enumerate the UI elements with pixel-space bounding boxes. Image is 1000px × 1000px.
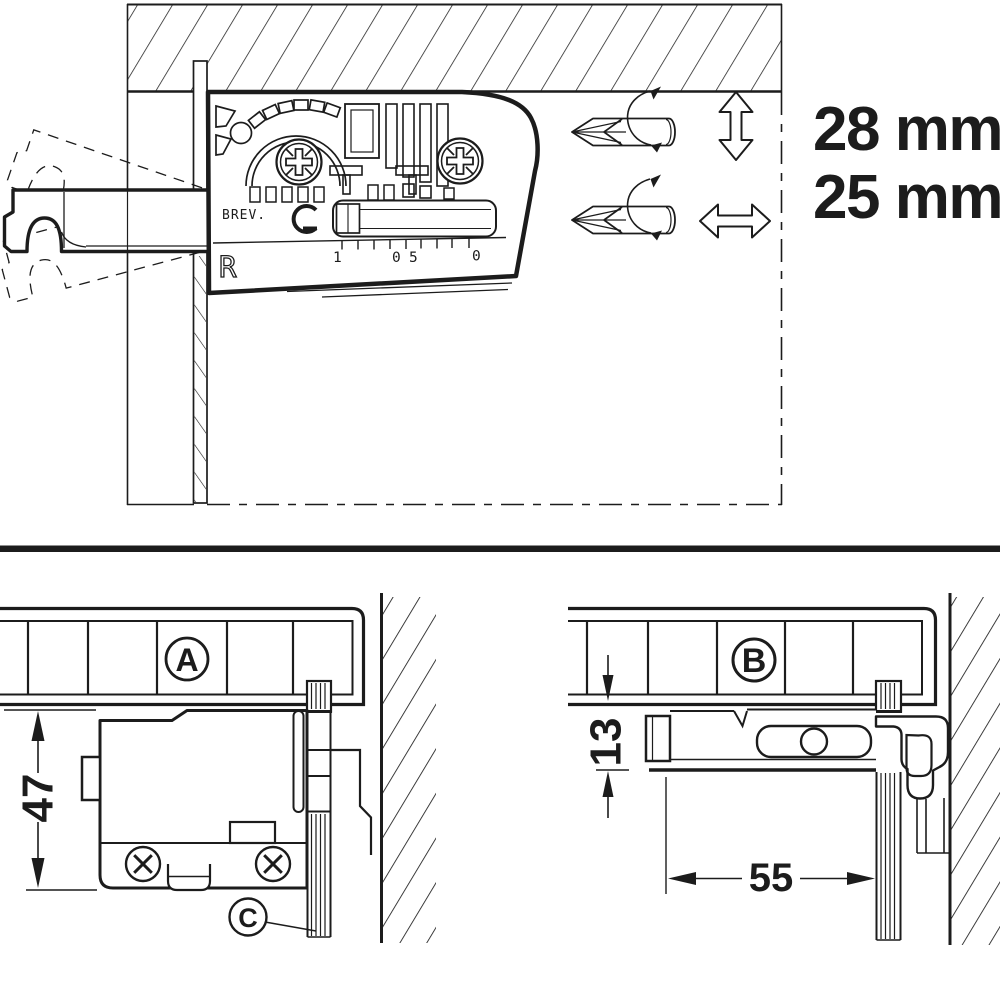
part-c-label: C: [238, 903, 258, 933]
patent-text: BREV.: [222, 208, 266, 223]
detail-b-label: B: [742, 642, 767, 680]
detail-b-badge: B: [733, 639, 775, 681]
bracket-front-view: [82, 711, 307, 891]
scale-mark: 0: [472, 249, 481, 265]
screwdriver-icon: [572, 87, 675, 153]
scale-mark: 5: [409, 250, 418, 266]
dim-13-label: 13: [582, 718, 631, 767]
section-divider: [0, 546, 1000, 553]
back-panel-strip: [194, 61, 208, 503]
top-section-view: 1 0 5 0 BREV. R 28 mm 25 mm: [0, 4, 1000, 505]
bracket-screw-icon: [438, 139, 483, 184]
label-screw-length-bottom: 25 mm: [813, 163, 1000, 232]
detail-a-view: 47 A C: [0, 593, 436, 943]
suspension-bracket: 1 0 5 0 BREV. R: [208, 92, 538, 297]
installation-diagram: 1 0 5 0 BREV. R 28 mm 25 mm: [0, 0, 1000, 1000]
dim-47-label: 47: [14, 774, 63, 823]
wall-rail-b: [877, 772, 901, 940]
part-c-badge: C: [230, 899, 317, 936]
label-screw-length-top: 28 mm: [813, 95, 1000, 164]
wall-hatch-a: [382, 593, 437, 943]
detail-a-label: A: [175, 642, 198, 678]
scale-mark: 1: [333, 250, 342, 266]
double-arrow-horizontal-icon: [700, 205, 770, 238]
wall-rail-a: [308, 713, 372, 937]
wall-hook-piece: [876, 717, 950, 854]
bracket-side-view: [646, 709, 876, 770]
screw-cross-icon: [256, 847, 290, 881]
wall-hatch-b: [950, 593, 1000, 945]
detail-a-badge: A: [166, 638, 208, 680]
orientation-mark: R: [219, 250, 237, 284]
installation-diagram-page: 1 0 5 0 BREV. R 28 mm 25 mm: [0, 0, 1000, 1000]
wall-rail-top-a: [306, 681, 332, 712]
detail-b-view: 13 55 B: [568, 593, 1000, 945]
wall-rail-top-b: [875, 681, 902, 712]
screw-cross-icon: [126, 847, 160, 881]
screwdriver-icon: [572, 175, 675, 241]
bracket-screw-icon: [277, 140, 322, 185]
ceiling-panel-hatch: [127, 5, 782, 92]
scale-mark: 0: [392, 250, 401, 266]
hanger-hook-arm: [5, 190, 211, 252]
dim-55-label: 55: [749, 856, 794, 900]
double-arrow-vertical-icon: [720, 92, 753, 160]
